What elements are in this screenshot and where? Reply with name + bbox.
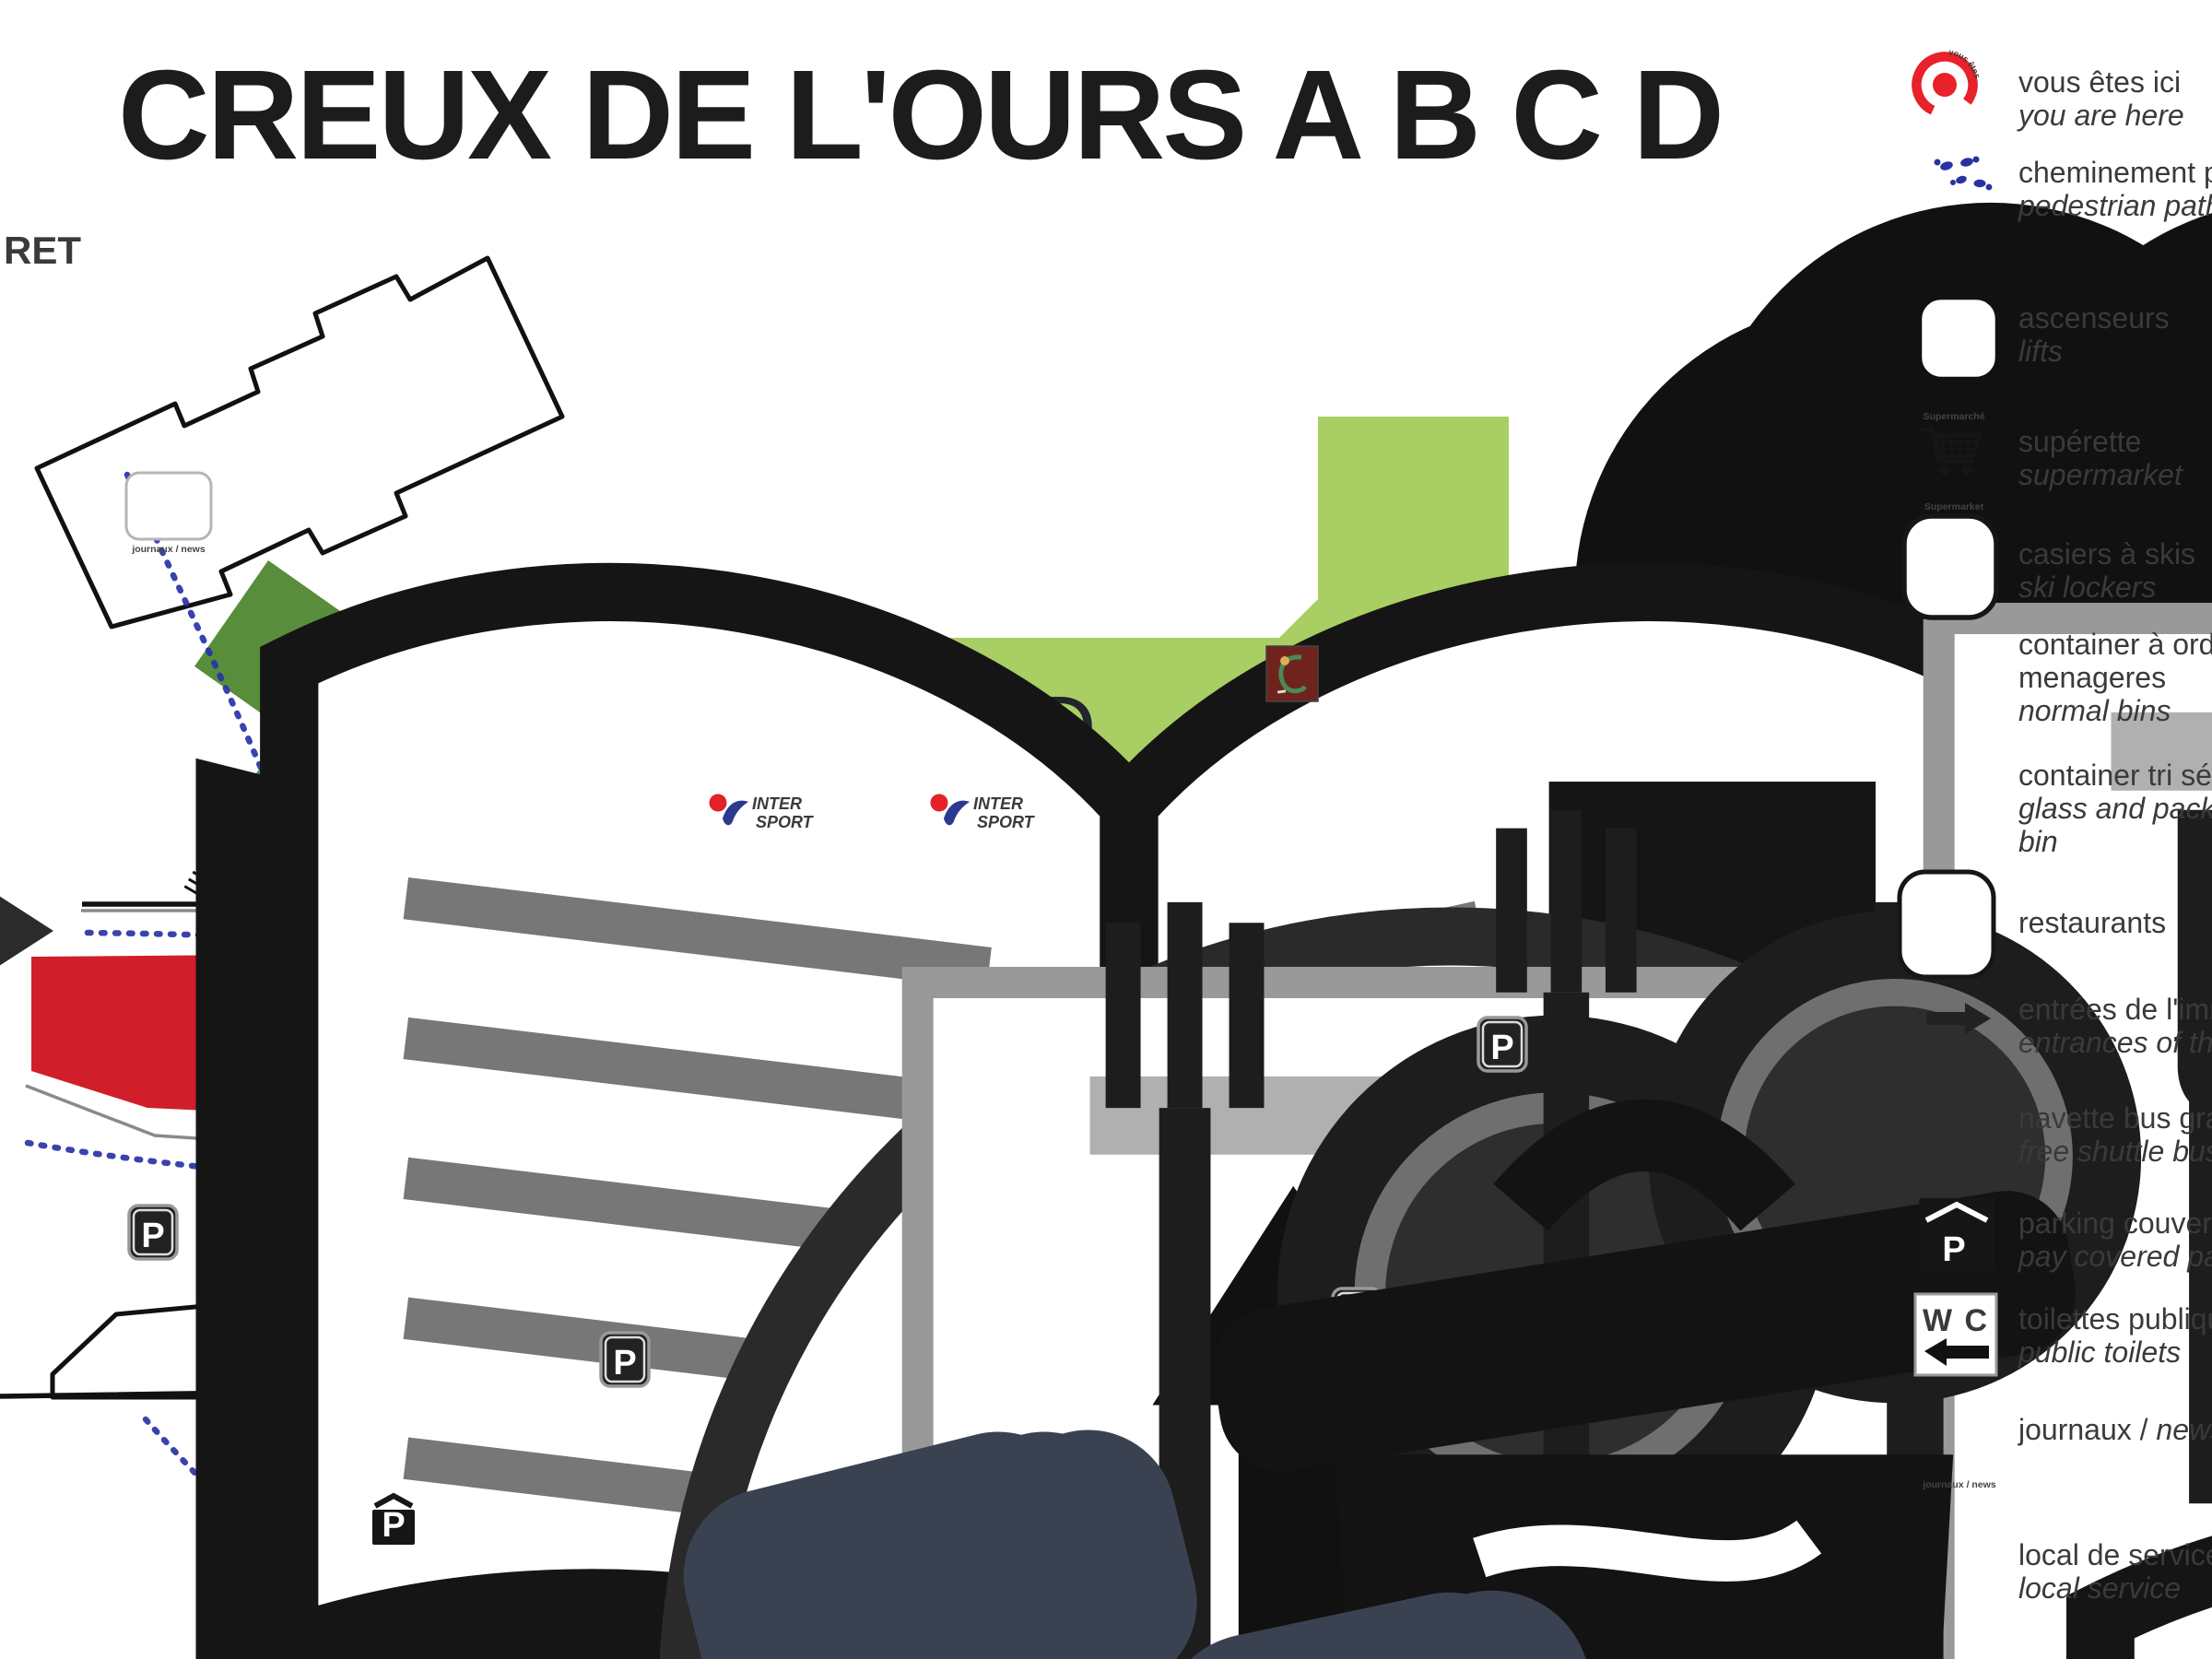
wc-icon: W C bbox=[1915, 1294, 1996, 1375]
legend-label: casiers à skis bbox=[2018, 537, 2195, 571]
legend-label: ascenseurs bbox=[2018, 301, 2170, 335]
svg-text:P: P bbox=[141, 1217, 164, 1255]
legend-label: navette bus gra bbox=[2018, 1101, 2212, 1135]
legend-label: supermarket bbox=[2018, 458, 2183, 491]
legend-label: journaux / news bbox=[2018, 1413, 2212, 1446]
wc-text: W C bbox=[1923, 1303, 1989, 1338]
intersport-top: INTER bbox=[973, 794, 1023, 813]
legend-label: ski lockers bbox=[2018, 571, 2156, 604]
legend-label: container tri sé bbox=[2018, 759, 2212, 792]
legend-label: vous êtes ici bbox=[2018, 65, 2181, 99]
building-outline-top-left bbox=[37, 258, 562, 627]
svg-text:P: P bbox=[382, 1506, 405, 1545]
page-title: CREUX DE L'OURS A B C D bbox=[118, 44, 1722, 186]
legend-label: restaurants bbox=[2018, 906, 2166, 939]
intersport-bottom: SPORT bbox=[756, 813, 815, 831]
legend-label: public toilets bbox=[2018, 1335, 2181, 1369]
legend-label: pay covered pa bbox=[2018, 1240, 2212, 1273]
supermarket-caption-bottom: Supermarket bbox=[1924, 501, 1984, 512]
parking-sign: P bbox=[129, 1206, 177, 1259]
legend-label: toilettes publiqu bbox=[2018, 1302, 2212, 1335]
legend-label: you are here bbox=[2017, 99, 2184, 132]
footprints-icon bbox=[1935, 157, 1993, 191]
svg-text:P: P bbox=[1942, 1230, 1965, 1269]
newspapers-caption: journaux / news bbox=[1922, 1479, 1996, 1490]
cut-label-left: RET bbox=[4, 229, 81, 272]
parking-sign: P bbox=[601, 1333, 649, 1386]
legend-label: pedestrian path bbox=[2018, 189, 2212, 222]
legend-label: entrées de l'imm bbox=[2018, 993, 2212, 1026]
legend-label: cheminement p bbox=[2018, 156, 2212, 189]
legend-label: lifts bbox=[2018, 335, 2063, 368]
legend-label: free shuttle bus bbox=[2018, 1135, 2212, 1168]
parking-sign: P bbox=[1478, 1018, 1526, 1071]
legend-label: glass and pack bbox=[2018, 792, 2212, 825]
covered-parking-icon: P bbox=[1919, 1198, 1994, 1272]
legend-label: menageres bbox=[2018, 661, 2166, 694]
svg-text:P: P bbox=[613, 1344, 636, 1382]
legend-label: local de service bbox=[2018, 1538, 2212, 1571]
you-are-here-icon: vous êtes ici bbox=[1907, 41, 1983, 123]
legend-label: entrances of the bbox=[2018, 1026, 2212, 1059]
newspapers-caption: journaux / news bbox=[131, 544, 206, 555]
legend-label: parking couvert bbox=[2018, 1206, 2212, 1240]
svg-text:P: P bbox=[1490, 1029, 1513, 1067]
legend-label: supérette bbox=[2018, 425, 2141, 458]
resort-map: CREUX DE L'OURS A B C D RET bbox=[0, 0, 2212, 1659]
intersport-bottom: SPORT bbox=[977, 813, 1036, 831]
legend-label: local service bbox=[2018, 1571, 2181, 1605]
supermarket-caption-top: Supermarché bbox=[1923, 411, 1984, 422]
legend-label: container à ord bbox=[2018, 628, 2212, 661]
restaurant-sign bbox=[1266, 646, 1318, 701]
legend-label: bin bbox=[2018, 825, 2058, 858]
legend-label: normal bins bbox=[2018, 694, 2171, 727]
intersport-top: INTER bbox=[752, 794, 802, 813]
building-outline-bottom-left bbox=[53, 1305, 217, 1397]
